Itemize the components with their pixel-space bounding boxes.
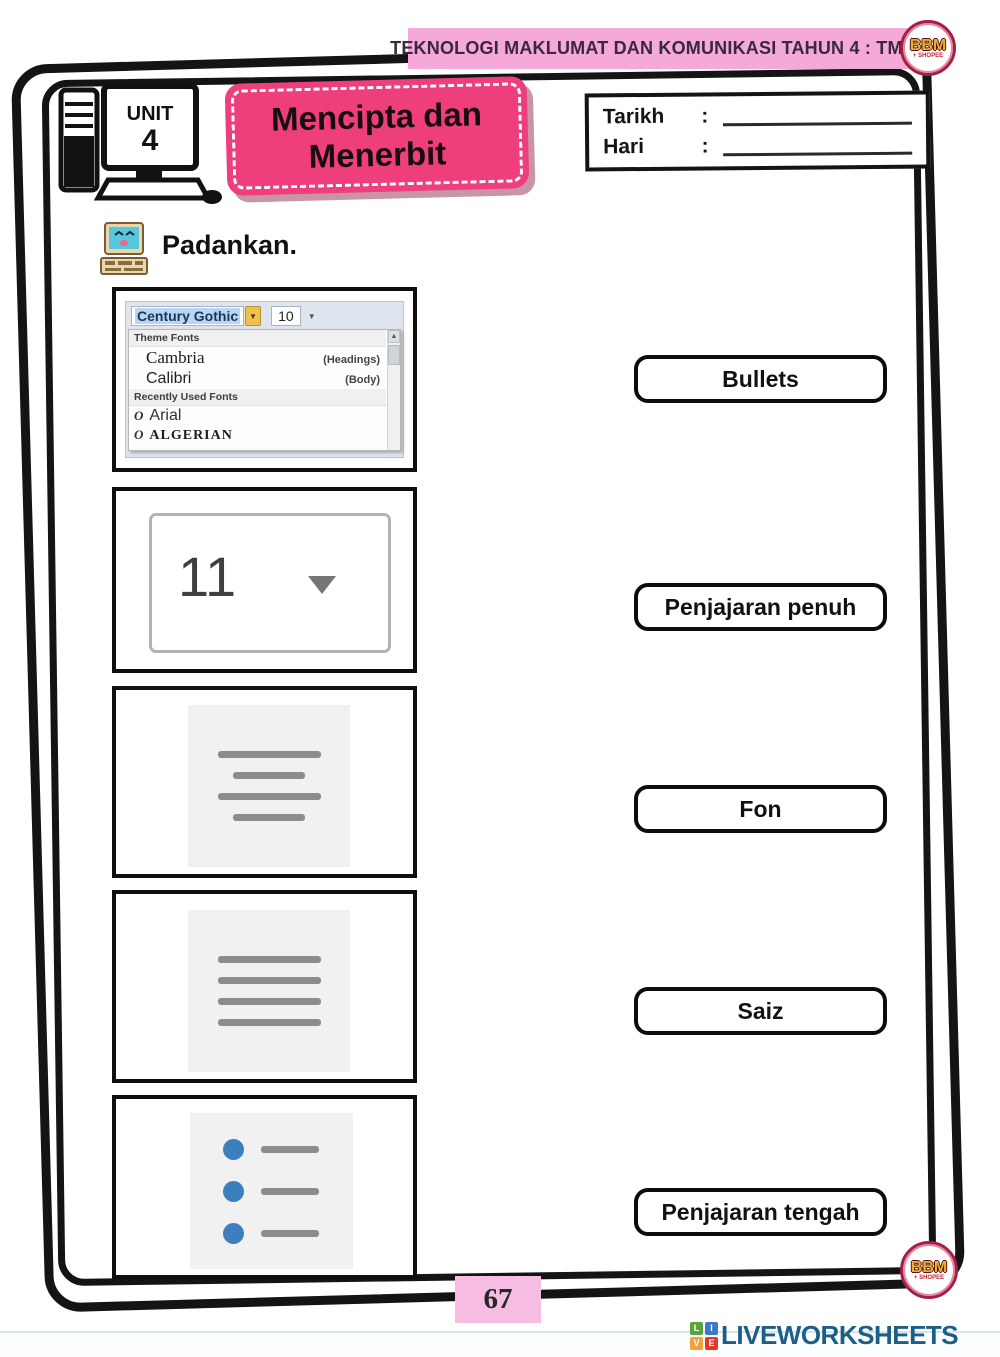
- truetype-icon: O: [134, 408, 143, 424]
- size-dropdown-control: 11: [149, 513, 391, 653]
- liveworksheets-grid-icon: L I V E: [690, 1322, 718, 1350]
- font-size-combobox: 10: [271, 306, 301, 326]
- day-row: Hari :: [603, 133, 912, 160]
- answer-pill-font[interactable]: Fon: [634, 785, 887, 833]
- bullet-line: [261, 1230, 319, 1237]
- align-line: [233, 772, 305, 779]
- bullet-row: [223, 1181, 353, 1202]
- font-list-item: O Arial: [129, 406, 386, 426]
- bbm-logo-bottom: BBM + SHOPEE: [900, 1241, 958, 1299]
- recent-fonts-header: Recently Used Fonts: [129, 389, 386, 406]
- dropdown-arrow-icon: [308, 576, 336, 594]
- day-input-line[interactable]: [723, 135, 912, 157]
- answer-pill-center[interactable]: Penjajaran tengah: [634, 1188, 887, 1236]
- lesson-title-badge: Mencipta dan Menerbit: [225, 76, 530, 196]
- align-line: [218, 977, 321, 984]
- bullet-line: [261, 1146, 319, 1153]
- worksheet-page: TEKNOLOGI MAKLUMAT DAN KOMUNIKASI TAHUN …: [0, 0, 1000, 1357]
- retro-computer-icon: [100, 222, 148, 276]
- font-list-panel: Theme Fonts Cambria (Headings) Calibri (…: [128, 329, 401, 451]
- bullet-row: [223, 1139, 353, 1160]
- match-item-font-dropdown[interactable]: Century Gothic ▼ 10 ▼ Theme Fonts Cambri…: [112, 287, 417, 472]
- answer-pill-justify[interactable]: Penjajaran penuh: [634, 583, 887, 631]
- day-label: Hari: [603, 135, 687, 160]
- bullet-line: [261, 1188, 319, 1195]
- scrollbar-thumb: [388, 345, 400, 365]
- page-number: 67: [455, 1276, 541, 1323]
- match-item-center-align[interactable]: [112, 686, 417, 878]
- unit-number: 4: [142, 124, 159, 157]
- justify-align-icon: [188, 910, 350, 1072]
- font-list-item: O ALGERIAN: [129, 426, 386, 445]
- subject-banner-title: TEKNOLOGI MAKLUMAT DAN KOMUNIKASI TAHUN …: [390, 38, 956, 59]
- font-name-combobox: Century Gothic: [131, 306, 244, 326]
- bullet-list-icon: [190, 1113, 353, 1269]
- font-dropdown-arrow-icon: ▼: [245, 306, 261, 326]
- size-dropdown-arrow-icon: ▼: [305, 306, 319, 326]
- theme-fonts-header: Theme Fonts: [129, 330, 386, 347]
- answer-pill-bullets[interactable]: Bullets: [634, 355, 887, 403]
- scroll-up-icon: ▲: [388, 330, 400, 343]
- date-input-line[interactable]: [723, 105, 912, 127]
- center-align-icon: [188, 705, 350, 867]
- align-line: [218, 1019, 321, 1026]
- size-value: 11: [178, 544, 236, 609]
- match-item-bullet-list[interactable]: [112, 1095, 417, 1279]
- answer-pill-size[interactable]: Saiz: [634, 987, 887, 1035]
- font-list-item: Cambria (Headings): [129, 347, 386, 369]
- align-line: [218, 998, 321, 1005]
- font-list-item: Calibri (Body): [129, 369, 386, 389]
- liveworksheets-wordmark: LIVEWORKSHEETS: [721, 1320, 958, 1351]
- font-dropdown-screenshot: Century Gothic ▼ 10 ▼ Theme Fonts Cambri…: [125, 301, 404, 458]
- align-line: [218, 751, 321, 758]
- subject-banner: TEKNOLOGI MAKLUMAT DAN KOMUNIKASI TAHUN …: [408, 28, 938, 69]
- instruction-text: Padankan.: [162, 230, 297, 261]
- align-line: [218, 956, 321, 963]
- align-line: [218, 793, 321, 800]
- match-item-size-dropdown[interactable]: 11: [112, 487, 417, 673]
- bbm-logo-top: BBM + SHOPEE: [900, 20, 956, 76]
- bullet-dot: [223, 1139, 244, 1160]
- bullet-dot: [223, 1223, 244, 1244]
- unit-label: UNIT: [127, 103, 174, 125]
- bullet-row: [223, 1223, 353, 1244]
- unit-computer-icon: UNIT 4: [56, 84, 224, 206]
- bullet-dot: [223, 1181, 244, 1202]
- align-line: [233, 814, 305, 821]
- selected-font-size: 10: [278, 308, 294, 324]
- date-label: Tarikh: [603, 105, 687, 130]
- date-day-box: Tarikh : Hari :: [585, 90, 931, 171]
- selected-font-name: Century Gothic: [135, 308, 240, 324]
- truetype-icon: O: [134, 427, 143, 443]
- ribbon-combo-row: Century Gothic ▼ 10 ▼: [126, 302, 403, 329]
- dashed-border: [231, 82, 524, 190]
- scrollbar: ▲: [387, 330, 400, 450]
- date-row: Tarikh :: [603, 103, 912, 130]
- match-item-justify-align[interactable]: [112, 890, 417, 1083]
- liveworksheets-logo[interactable]: L I V E LIVEWORKSHEETS: [690, 1320, 958, 1351]
